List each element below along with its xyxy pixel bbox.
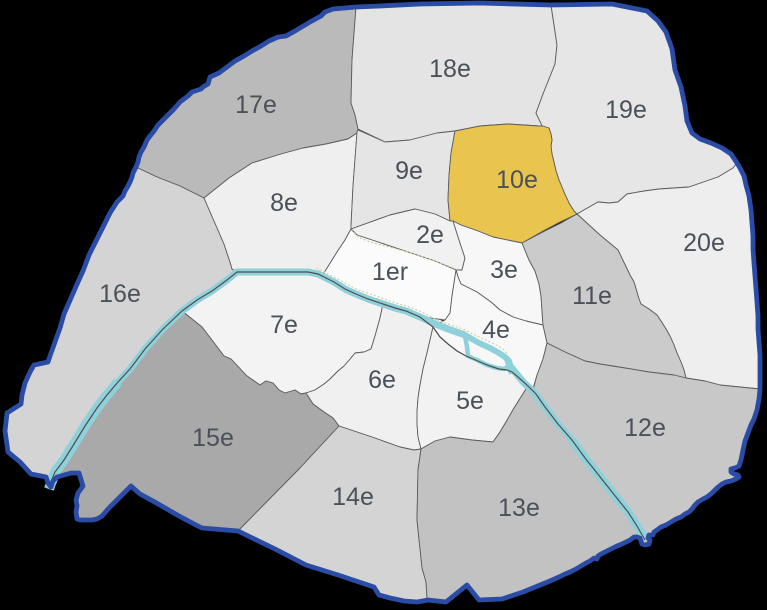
- svg-text:12e: 12e: [624, 414, 666, 442]
- svg-text:17e: 17e: [235, 91, 277, 119]
- svg-text:10e: 10e: [496, 166, 538, 194]
- svg-text:11e: 11e: [572, 282, 612, 310]
- svg-text:1er: 1er: [372, 258, 408, 286]
- svg-text:20e: 20e: [683, 229, 725, 257]
- svg-text:2e: 2e: [416, 221, 444, 249]
- svg-text:8e: 8e: [270, 189, 298, 217]
- svg-text:13e: 13e: [498, 494, 540, 522]
- svg-text:4e: 4e: [482, 316, 510, 344]
- svg-text:9e: 9e: [395, 157, 423, 185]
- svg-text:14e: 14e: [332, 483, 374, 511]
- svg-text:6e: 6e: [368, 366, 396, 394]
- svg-text:15e: 15e: [192, 424, 234, 452]
- svg-text:3e: 3e: [490, 256, 518, 284]
- svg-text:19e: 19e: [605, 96, 647, 124]
- svg-text:18e: 18e: [429, 55, 471, 83]
- svg-text:7e: 7e: [270, 311, 298, 339]
- svg-text:5e: 5e: [456, 387, 484, 415]
- svg-text:16e: 16e: [99, 280, 141, 308]
